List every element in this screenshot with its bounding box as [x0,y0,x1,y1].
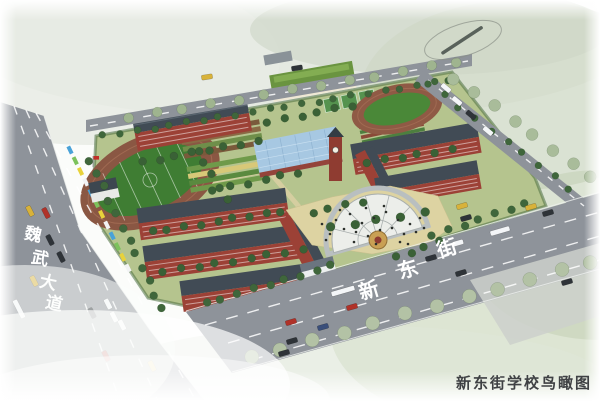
tree [399,154,407,162]
tree [263,119,271,127]
tree [152,126,159,133]
tree [382,87,389,94]
tree [219,142,227,150]
tree [196,263,204,271]
tree [300,245,308,253]
tree [326,261,334,269]
tree [420,243,428,251]
tree [396,86,403,93]
tree [294,170,302,178]
wall-panel [77,167,84,176]
tree [462,289,476,303]
pedestrian [391,227,394,230]
tree [248,254,256,262]
tree [162,226,170,234]
tree [157,304,165,312]
tree [523,273,537,287]
tree [425,81,432,88]
pedestrian [375,243,378,246]
tree [112,209,120,217]
tree [244,180,252,188]
tree [345,75,355,85]
caption-title: 新东街学校鸟瞰图 [456,372,592,393]
tree [201,117,208,124]
pedestrian [423,227,426,230]
tree [177,264,185,272]
tree [421,208,430,217]
pedestrian [379,229,382,232]
tree [351,220,360,229]
tree [262,176,270,184]
tree [104,197,112,205]
tree [232,112,239,119]
pedestrian [397,219,400,222]
tree [246,213,254,221]
tree [349,103,357,111]
tree [297,272,305,280]
tree [150,292,158,300]
tree [180,222,188,230]
tree [188,148,196,156]
tree [547,145,559,157]
tree [552,172,559,179]
wall-panel [72,156,79,165]
tree [331,104,339,112]
tree [474,216,482,224]
pedestrian [361,222,364,225]
tree [430,299,444,313]
aerial-rendering-canvas: 魏武大道新东街 新东街学校鸟瞰图 [0,0,600,401]
tree [156,156,164,164]
tree [237,141,245,149]
tree [152,107,162,117]
tree [381,155,389,163]
tree [146,277,154,285]
tree [250,284,258,292]
tree [324,205,332,213]
tree [505,138,512,145]
tree [408,249,416,257]
tree [326,222,335,231]
tree [100,182,108,190]
tree [565,186,572,193]
tree [310,209,318,217]
tree [535,162,542,169]
tree [366,316,380,330]
tree [259,90,269,100]
pedestrian [329,233,332,236]
tree [226,182,234,190]
pedestrian [419,217,422,220]
tree [489,99,501,111]
tree [195,147,203,155]
tree [365,90,372,97]
tree [233,290,241,298]
pedestrian [339,209,342,212]
pedestrian [343,228,346,231]
tree [281,249,289,257]
tree [149,227,157,235]
pedestrian [367,235,370,238]
tree [216,184,224,192]
tree [363,159,371,167]
tree [210,259,218,267]
tree [131,249,139,257]
tree [298,100,305,107]
tree [313,108,321,116]
tree [447,73,459,85]
tree [449,145,457,153]
tree [518,149,525,156]
tree [508,206,516,214]
tree [134,127,141,134]
tree [287,84,297,94]
tree [427,61,437,71]
wall-panel [66,146,73,155]
tree [392,252,400,260]
tree [170,152,178,160]
pedestrian [365,207,368,210]
tree [138,264,146,272]
tree [359,199,367,207]
tree [568,158,580,170]
tree [398,66,408,76]
tree [347,91,354,98]
tree [461,222,469,230]
tree [228,214,236,222]
tree [124,113,134,123]
tree [431,149,439,157]
tree [215,218,223,226]
tree [208,187,216,195]
pedestrian [325,239,328,242]
pedestrian [321,223,324,226]
pedestrian [353,241,356,244]
tree [197,221,205,229]
tree [183,118,190,125]
tree [555,263,569,277]
pedestrian [403,233,406,236]
tree [165,122,172,129]
tree [369,72,379,82]
pedestrian [335,219,338,222]
tree [526,129,538,141]
tree [371,215,380,224]
tree [316,99,323,106]
tree [119,225,127,233]
pedestrian [373,217,376,220]
tree [427,232,435,240]
tree [313,267,321,275]
pedestrian [349,213,352,216]
pedestrian [407,243,410,246]
tree [263,209,271,217]
tree [398,306,412,320]
tree [444,225,452,233]
pedestrian [409,223,412,226]
clock-face [333,147,339,153]
tree [139,157,147,165]
tree [255,137,263,145]
tree [305,333,319,347]
tree [85,157,93,165]
tree [341,200,349,208]
red-flag [94,156,100,160]
tree [116,130,123,137]
tree [338,326,352,340]
tree [93,170,101,178]
tree [414,82,421,89]
tree [267,105,274,112]
tree [281,114,289,122]
tree [229,258,237,266]
tree [249,109,256,116]
pedestrian [355,231,358,234]
tree [276,208,284,216]
tree [224,195,232,203]
tree [316,81,326,91]
tree [206,98,216,108]
tree [234,96,244,106]
clock-tower [327,127,344,181]
tree [207,170,215,178]
tree [262,250,270,258]
tree [491,209,499,217]
tree [281,104,288,111]
tree [203,298,211,306]
tree [276,171,284,179]
pedestrian [383,205,386,208]
tree [491,282,505,296]
tree [510,116,522,128]
pedestrian [385,211,388,214]
tree [206,147,214,155]
tree [329,95,336,102]
tree [299,113,307,121]
tree [177,104,187,114]
pedestrian [415,231,418,234]
school-birdseye-scene: 魏武大道新东街 [0,0,600,401]
tree [413,150,421,158]
tree [127,237,135,245]
tree [468,86,480,98]
tree [158,268,166,276]
tree [267,281,275,289]
pedestrian [399,241,402,244]
tree [99,131,106,138]
tree [216,296,224,304]
tree [431,78,438,85]
tree [199,159,207,167]
tree [214,113,221,120]
tree [280,275,288,283]
